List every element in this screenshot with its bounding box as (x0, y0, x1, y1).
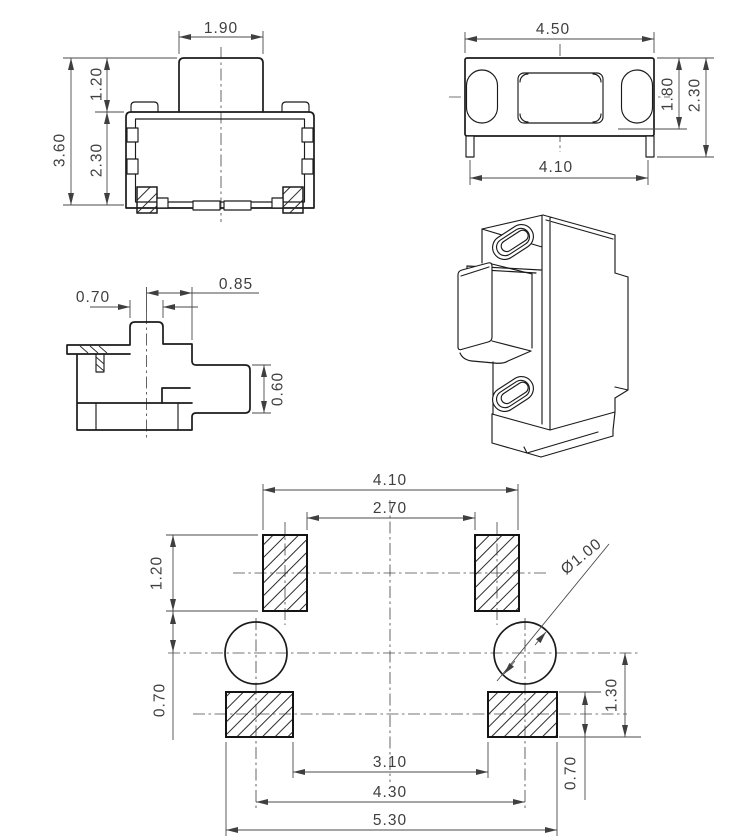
dim-front-button-width: 1.90 (204, 20, 238, 37)
front-solder-feet (137, 187, 303, 213)
dim-top-body-width: 4.50 (536, 21, 570, 38)
technical-drawing-page: 1.90 3.60 1.20 2.30 4.50 4.10 1.80 2.30 (0, 0, 740, 840)
dim-top-lead-span: 4.10 (539, 159, 573, 176)
pcb-hole-arrow-lower (504, 661, 515, 674)
dim-pcb-top-span-outer: 4.10 (373, 472, 407, 489)
pcb-top-right-pad (475, 535, 519, 611)
pcb-bottom-right-pad (488, 692, 557, 737)
dim-top-inner-depth: 1.80 (659, 77, 676, 111)
top-left-lead (466, 136, 474, 157)
side-view: 0.70 0.85 0.60 (67, 276, 286, 440)
side-hatch-lines (80, 346, 107, 371)
dim-pcb-bottom-pad-height: 0.70 (562, 756, 579, 790)
top-right-lead (646, 136, 654, 157)
drawing-canvas: 1.90 3.60 1.20 2.30 4.50 4.10 1.80 2.30 (0, 0, 740, 840)
top-body-outline (465, 58, 654, 136)
dim-pcb-top-gap: 0.70 (151, 683, 168, 717)
land-pattern-view: 4.10 2.70 1.20 0.70 Ø1.00 1.30 0.70 3.10… (148, 472, 641, 836)
side-bracket-section (96, 354, 178, 430)
dim-side-center-to-face: 0.85 (219, 276, 253, 293)
iso-upper-boss (488, 220, 538, 264)
dim-pcb-bottom-span-outer: 5.30 (373, 812, 407, 829)
front-extension-lines (63, 31, 263, 205)
front-top-tabs (131, 102, 309, 112)
front-view: 1.90 3.60 1.20 2.30 (51, 20, 314, 222)
top-view: 4.50 4.10 1.80 2.30 (449, 21, 714, 185)
pcb-hole-arrow-upper (535, 632, 546, 645)
dim-front-total-height: 3.60 (51, 133, 68, 167)
dim-pcb-hole-span: 4.30 (373, 784, 407, 801)
dim-pcb-top-span-inner: 2.70 (373, 500, 407, 517)
pcb-top-left-pad (263, 535, 307, 611)
dim-side-stem-height: 0.60 (269, 372, 286, 406)
dim-front-button-height: 1.20 (88, 67, 105, 101)
side-profile-outline (67, 322, 250, 430)
pcb-right-hole (494, 622, 556, 684)
front-side-notches (127, 128, 313, 174)
dim-front-body-height: 2.30 (88, 143, 105, 177)
dim-top-total-depth: 2.30 (686, 78, 703, 112)
dim-pcb-top-pad-height: 1.20 (148, 556, 165, 590)
dim-side-boss-width: 0.70 (76, 289, 110, 306)
iso-lower-boss (488, 372, 538, 416)
dim-pcb-center-drop: 1.30 (603, 678, 620, 712)
dim-pcb-bottom-span-inner: 3.10 (373, 754, 407, 771)
isometric-view (458, 215, 628, 457)
front-body-inner-frame (136, 119, 305, 202)
pcb-bottom-left-pad (226, 692, 293, 737)
iso-stem-button (458, 263, 532, 363)
